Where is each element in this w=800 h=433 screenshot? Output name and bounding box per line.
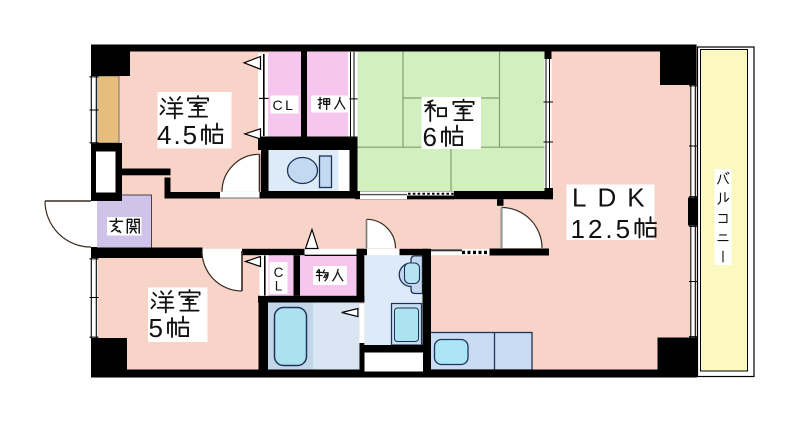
svg-text:12.5: 12.5 xyxy=(571,214,634,244)
svg-text:L: L xyxy=(275,279,283,294)
svg-text:5: 5 xyxy=(149,313,163,343)
svg-text:6: 6 xyxy=(423,122,437,152)
svg-text:4.5: 4.5 xyxy=(157,120,199,150)
svg-text:CL: CL xyxy=(273,97,296,113)
svg-text:LDK: LDK xyxy=(572,183,656,213)
